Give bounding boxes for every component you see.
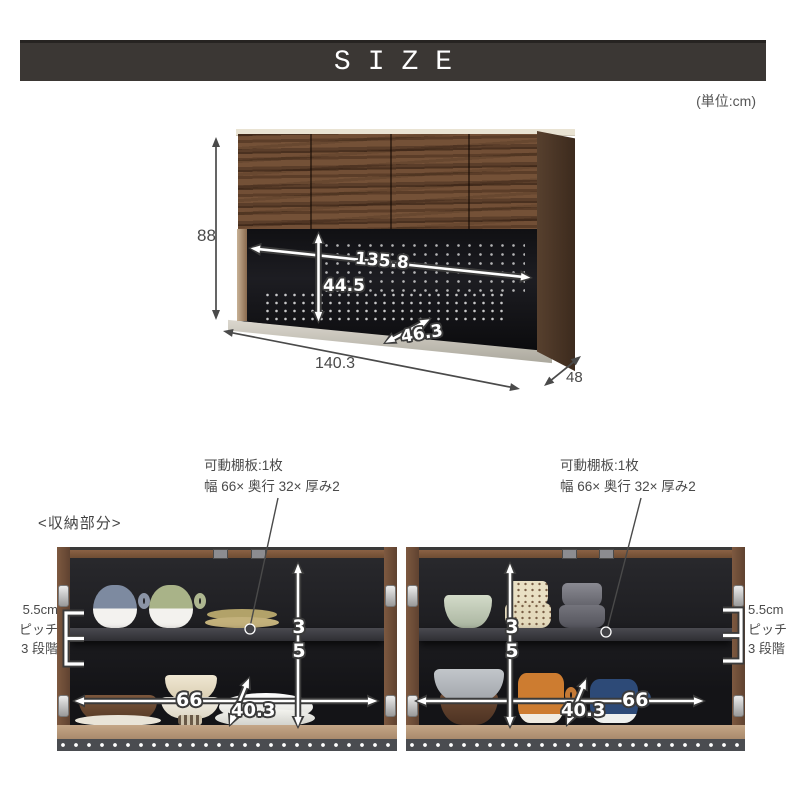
left-photo-width-label: 66 [176, 689, 202, 711]
cup-dark-bottom [559, 605, 605, 628]
pitch-left-line3: 3 段階 [2, 639, 58, 659]
size-header-bar: SIZE [20, 40, 766, 81]
photo-right-frame [384, 547, 397, 751]
shelf-note-right: 可動棚板:1枚 幅 66× 奥行 32× 厚み2 [560, 455, 696, 497]
right-photo-height-label: 35 [501, 616, 523, 664]
page: SIZE (単位:cm) 88 135.8 44.5 46.3 140.3 48… [0, 0, 790, 790]
pitch-right-line1: 5.5cm [748, 600, 790, 620]
photo-top-rail [57, 547, 397, 558]
left-photo-height-label: 35 [288, 616, 310, 664]
right-photo-width-label: 66 [622, 689, 648, 711]
shelf-note-left: 可動棚板:1枚 幅 66× 奥行 32× 厚み2 [204, 455, 340, 497]
dotted-base-strip [406, 739, 745, 751]
door-catch [251, 549, 266, 559]
unit-note: (単位:cm) [696, 91, 756, 111]
door-catch [213, 549, 228, 559]
dim-outer-depth-label: 48 [566, 369, 583, 386]
cabinet-side-panel [537, 131, 575, 376]
perforated-panel [263, 291, 503, 323]
pitch-note-left: 5.5cm ピッチ 3 段階 [2, 600, 58, 659]
photo-left-frame [406, 547, 419, 751]
hinge-icon [58, 695, 69, 717]
pitch-right-line2: ピッチ [748, 620, 790, 640]
bowl-celadon [444, 595, 492, 628]
pitch-left-line1: 5.5cm [2, 600, 58, 620]
door-catch [562, 549, 577, 559]
hinge-icon [58, 585, 69, 607]
storage-section-heading: <収納部分> [38, 512, 122, 533]
mug-orange [518, 673, 564, 723]
hinge-icon [733, 695, 744, 717]
photo-bottom-rail [57, 725, 397, 739]
cabinet-inner-edge [237, 229, 247, 321]
door-gap [390, 134, 392, 230]
dim-height-label: 88 [197, 226, 216, 246]
pitch-left-line2: ピッチ [2, 620, 58, 640]
photo-left-frame [57, 547, 70, 751]
photo-right-frame [732, 547, 745, 751]
dotted-base-strip [57, 739, 397, 751]
mug-green [149, 585, 193, 628]
mug-blue [93, 585, 137, 628]
pitch-note-right: 5.5cm ピッチ 3 段階 [748, 600, 790, 659]
hinge-icon [385, 585, 396, 607]
photo-bottom-rail [406, 725, 745, 739]
adjustable-shelf [70, 628, 384, 641]
plate-stack-olive [205, 617, 279, 628]
door-catch [599, 549, 614, 559]
hinge-icon [407, 695, 418, 717]
adjustable-shelf [419, 628, 732, 641]
door-gap [468, 134, 470, 230]
door-gap [310, 134, 312, 230]
hinge-icon [407, 585, 418, 607]
shelf-note-left-line1: 可動棚板:1枚 [204, 455, 340, 476]
dim-outer-width-label: 140.3 [315, 355, 355, 373]
page-title: SIZE [334, 47, 469, 78]
storage-photo-left [57, 547, 397, 751]
cup-dark-top [562, 583, 602, 607]
dim-inner-height-label: 44.5 [323, 276, 365, 296]
bowl-foot [178, 715, 202, 725]
photo-top-rail [406, 547, 745, 558]
hinge-icon [733, 585, 744, 607]
shelf-note-right-line1: 可動棚板:1枚 [560, 455, 696, 476]
left-photo-depth-label: 40.3 [231, 700, 275, 721]
pitch-right-line3: 3 段階 [748, 639, 790, 659]
hinge-icon [385, 695, 396, 717]
shelf-note-right-line2: 幅 66× 奥行 32× 厚み2 [560, 476, 696, 497]
right-photo-depth-label: 40.3 [561, 700, 605, 721]
shelf-note-left-line2: 幅 66× 奥行 32× 厚み2 [204, 476, 340, 497]
cabinet-doors [238, 134, 537, 230]
